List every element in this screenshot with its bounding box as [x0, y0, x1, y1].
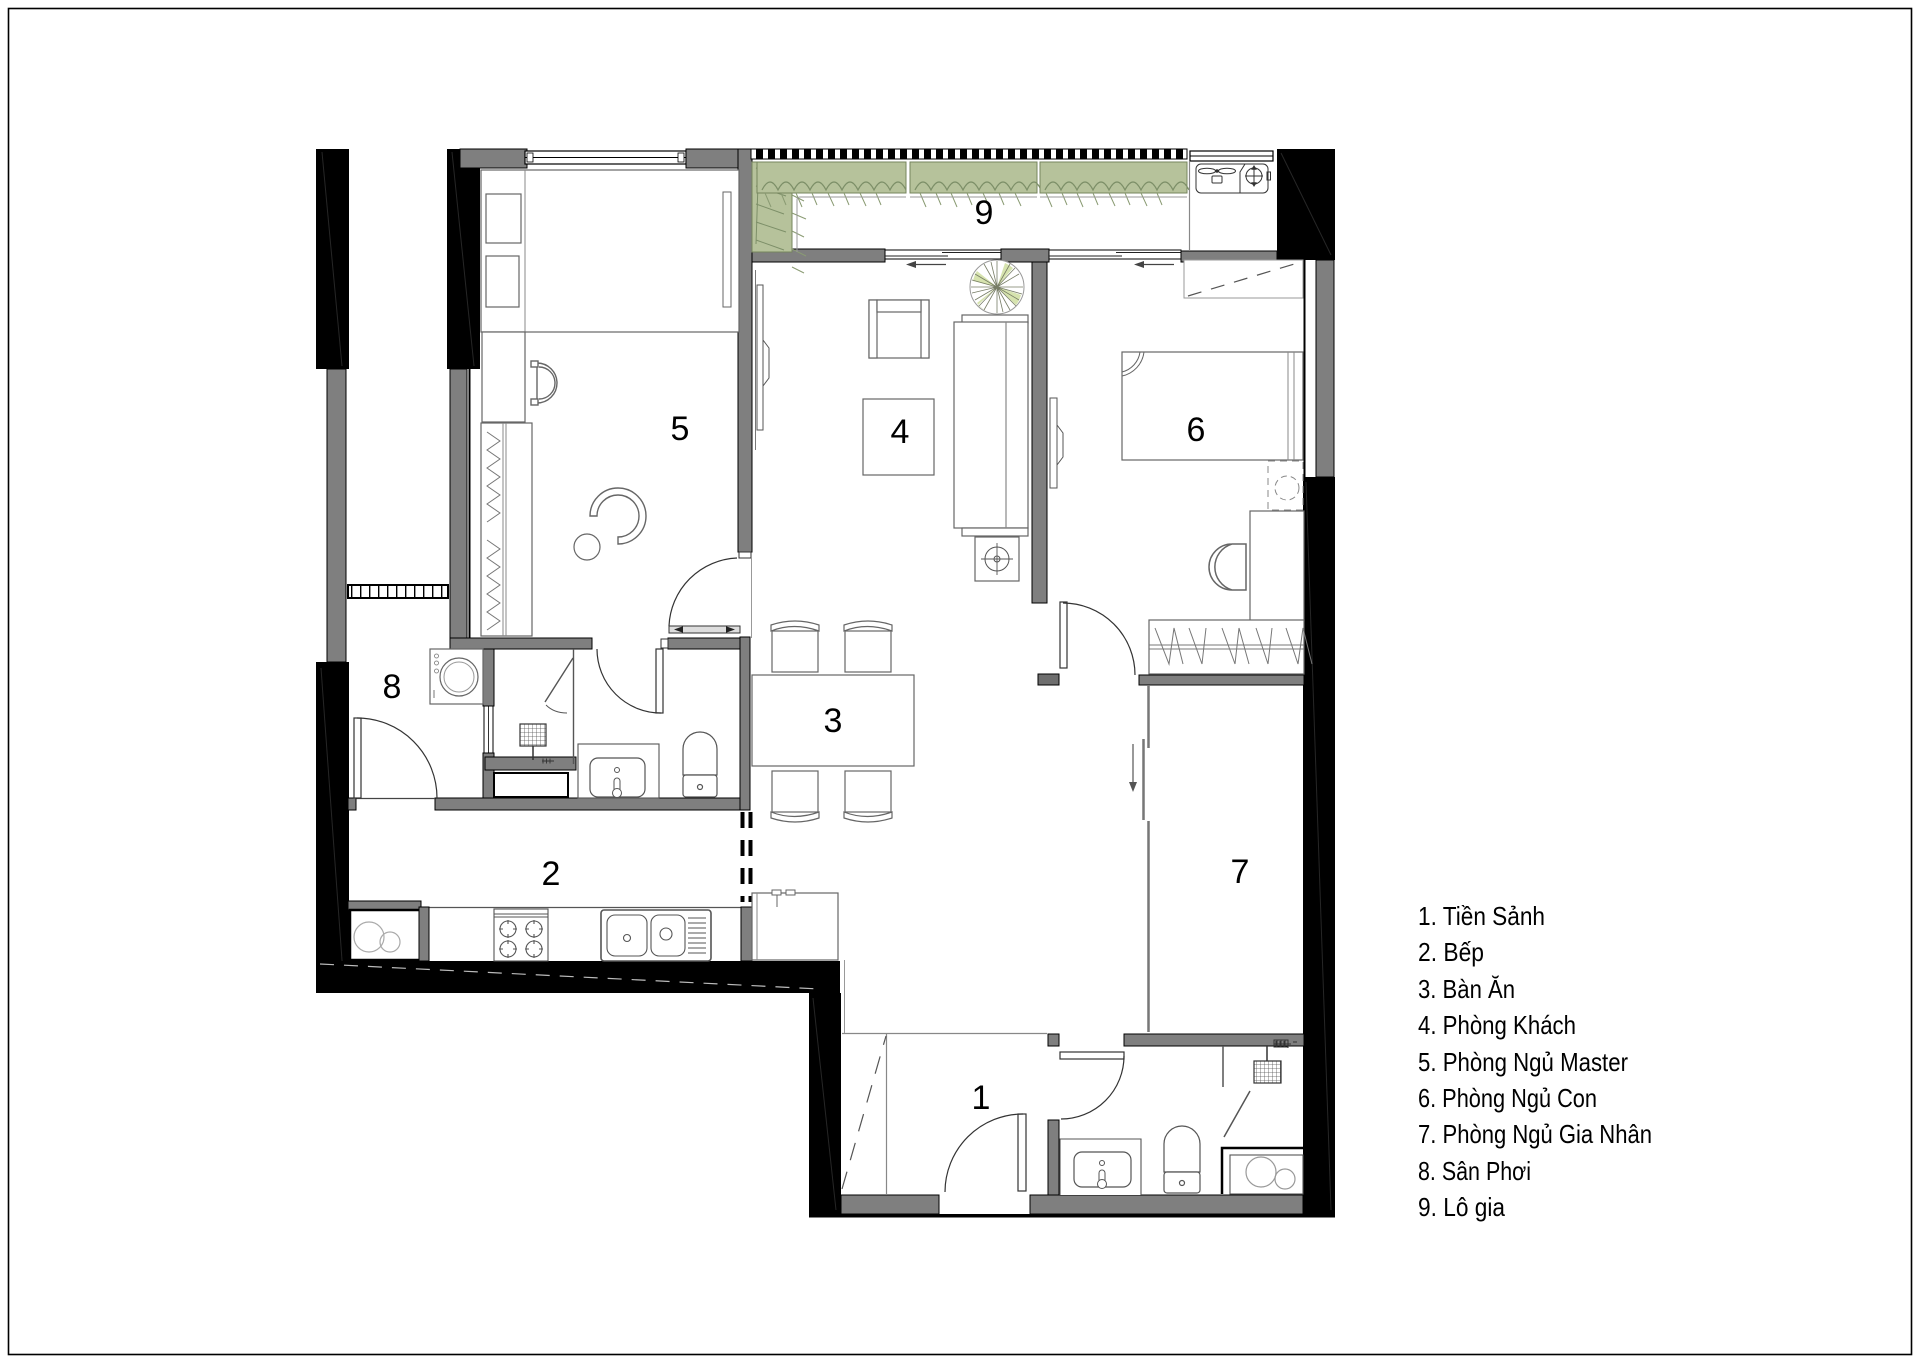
- svg-text:3. Bàn Ăn: 3. Bàn Ăn: [1418, 974, 1515, 1004]
- svg-text:6. Phòng Ngủ Con: 6. Phòng Ngủ Con: [1418, 1083, 1597, 1113]
- svg-text:5. Phòng Ngủ Master: 5. Phòng Ngủ Master: [1418, 1047, 1628, 1077]
- svg-text:1. Tiền Sảnh: 1. Tiền Sảnh: [1418, 901, 1545, 931]
- svg-text:9: 9: [975, 194, 994, 232]
- svg-text:4: 4: [891, 413, 910, 451]
- svg-text:8. Sân Phơi: 8. Sân Phơi: [1418, 1156, 1531, 1186]
- svg-text:9. Lô gia: 9. Lô gia: [1418, 1192, 1505, 1222]
- svg-text:1: 1: [972, 1079, 991, 1117]
- svg-text:5: 5: [671, 410, 690, 448]
- svg-text:7. Phòng Ngủ Gia Nhân: 7. Phòng Ngủ Gia Nhân: [1418, 1119, 1652, 1149]
- svg-text:6: 6: [1187, 411, 1206, 449]
- svg-text:3: 3: [824, 702, 843, 740]
- svg-text:2. Bếp: 2. Bếp: [1418, 937, 1484, 967]
- svg-text:8: 8: [383, 668, 402, 706]
- svg-text:2: 2: [542, 855, 561, 893]
- svg-text:7: 7: [1231, 853, 1250, 891]
- svg-text:4. Phòng Khách: 4. Phòng Khách: [1418, 1010, 1576, 1040]
